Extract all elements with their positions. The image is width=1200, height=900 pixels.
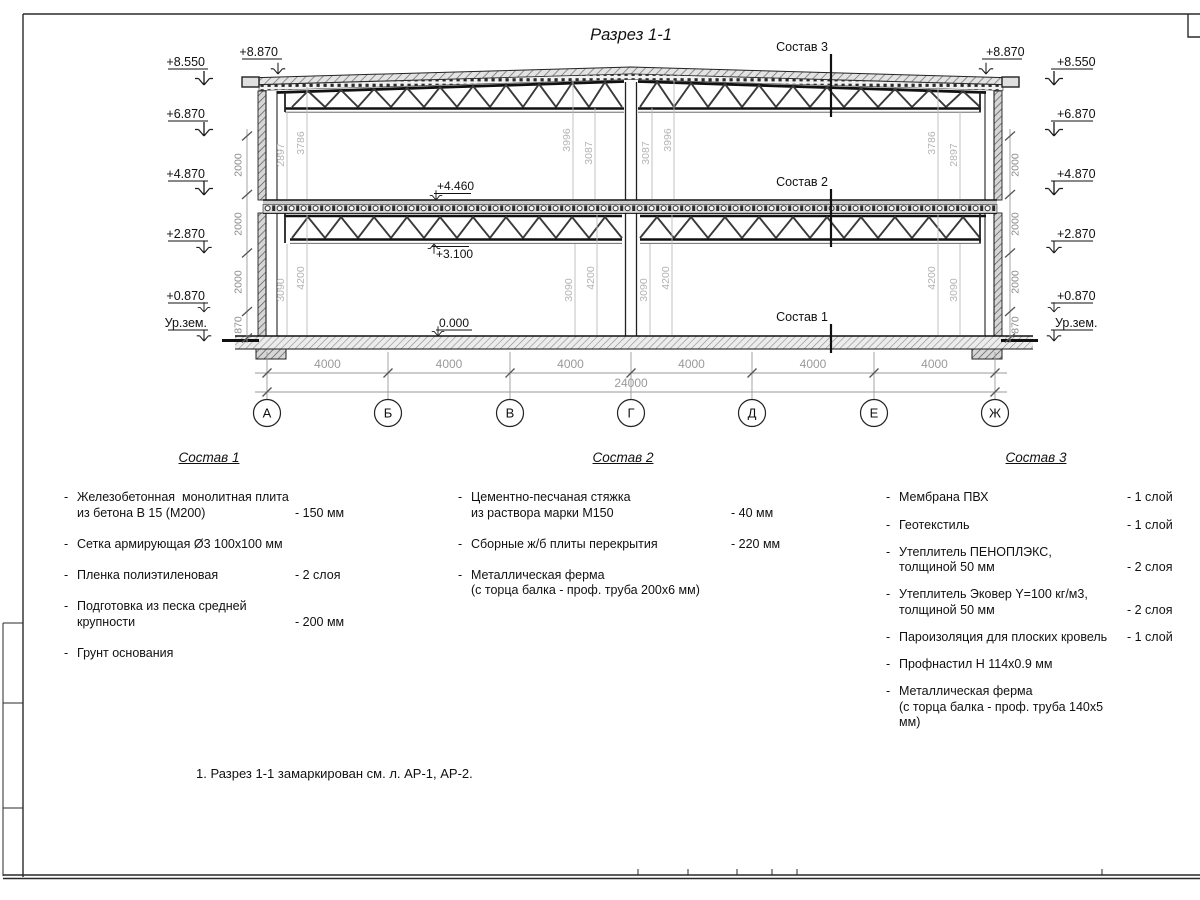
item-bullet: - — [64, 568, 77, 583]
dim-3786: 3786 — [295, 131, 307, 155]
elev-right-0870: +0.870 — [1057, 289, 1096, 303]
roof-edge-cap-right — [1002, 77, 1019, 87]
axis-label-a: А — [263, 406, 272, 421]
item-text: Металлическая ферма (с торца балка - про… — [899, 684, 1127, 730]
dim-3996: 3996 — [561, 128, 573, 152]
item-bullet: - — [64, 537, 77, 552]
list-item: - Профнастил Н 114х0.9 мм — [886, 657, 1186, 672]
chain-dim: 2000 — [233, 270, 245, 294]
dim-3090: 3090 — [275, 278, 287, 302]
elev-right-6870: +6.870 — [1057, 107, 1096, 121]
item-bullet: - — [886, 545, 899, 560]
dim-3090: 3090 — [563, 278, 575, 302]
item-text: Утеплитель Эковер Y=100 кг/м3, толщиной … — [899, 587, 1127, 618]
item-bullet: - — [886, 518, 899, 533]
item-text: Мембрана ПВХ — [899, 490, 1127, 505]
item-bullet: - — [886, 684, 899, 699]
list-item: - Сборные ж/б плиты перекрытия - 220 мм — [458, 537, 788, 552]
list-item: - Грунт основания — [64, 646, 354, 661]
elev-left-8870: +8.870 — [239, 45, 278, 59]
list-item: - Утеплитель ПЕНОПЛЭКС, толщиной 50 мм -… — [886, 545, 1186, 576]
item-text: Сетка армирующая Ø3 100х100 мм — [77, 537, 295, 552]
axis-label-v: В — [506, 406, 515, 421]
item-bullet: - — [886, 630, 899, 645]
item-value: - 220 мм — [731, 537, 785, 552]
dim-4000: 4000 — [800, 357, 827, 371]
axis-label-b: Б — [384, 406, 393, 421]
interior-dims-upper — [287, 80, 960, 199]
chain-dim: 2000 — [1010, 153, 1022, 177]
list-item: - Подготовка из песка средней крупности … — [64, 599, 354, 630]
interior-dims-lower — [287, 214, 960, 335]
elev-left-2870: +2.870 — [166, 227, 205, 241]
item-text: Пленка полиэтиленовая — [77, 568, 295, 583]
sheet-note: 1. Разрез 1-1 замаркирован см. л. АР-1, … — [196, 766, 473, 781]
dim-chain-left: 2000 2000 2000 870 — [233, 129, 253, 343]
elev-0000: 0.000 — [439, 316, 469, 330]
list-item: - Металлическая ферма (с торца балка - п… — [458, 568, 788, 599]
interior-dim-labels-lower: 3090 4200 3090 4200 3090 4200 4200 3090 — [275, 266, 960, 302]
dim-3087: 3087 — [640, 141, 652, 165]
item-bullet: - — [64, 490, 77, 505]
item-text: Сборные ж/б плиты перекрытия — [471, 537, 731, 552]
item-value: - 40 мм — [731, 506, 785, 521]
dim-24000: 24000 — [614, 376, 648, 390]
item-text: Цементно-песчаная стяжка из раствора мар… — [471, 490, 731, 521]
leader-label-sostav1: Состав 1 — [776, 310, 828, 324]
elev-left-6870: +6.870 — [166, 107, 205, 121]
axis-label-zh: Ж — [989, 406, 1001, 421]
bottom-dims: 4000 4000 4000 4000 4000 4000 24000 — [255, 352, 1007, 399]
elev-3100: +3.100 — [436, 247, 473, 261]
footing-left — [256, 349, 286, 359]
chain-dim: 2000 — [233, 153, 245, 177]
dim-3786: 3786 — [926, 131, 938, 155]
elev-left-8550: +8.550 — [166, 55, 205, 69]
item-bullet: - — [458, 568, 471, 583]
list-item: - Утеплитель Эковер Y=100 кг/м3, толщино… — [886, 587, 1186, 618]
drawing-title: Разрез 1-1 — [590, 26, 672, 44]
middle-floor-slab — [263, 200, 997, 213]
titleblock-ticks — [638, 869, 1102, 875]
composition-list-1: Состав 1 - Железобетонная монолитная пли… — [64, 450, 354, 677]
item-bullet: - — [886, 587, 899, 602]
chain-dim: 870 — [233, 316, 245, 334]
elev-right-4870: +4.870 — [1057, 167, 1096, 181]
leader-label-sostav2: Состав 2 — [776, 175, 828, 189]
item-bullet: - — [886, 657, 899, 672]
dim-4000: 4000 — [921, 357, 948, 371]
dim-4000: 4000 — [557, 357, 584, 371]
list-item: - Цементно-песчаная стяжка из раствора м… — [458, 490, 788, 521]
middle-truss-right — [640, 213, 986, 243]
dim-4200: 4200 — [585, 266, 597, 290]
dim-4000: 4000 — [436, 357, 463, 371]
drawing-sheet: Разрез 1-1 — [0, 0, 1200, 900]
item-value: - 1 слой — [1127, 518, 1185, 533]
item-text: Железобетонная монолитная плита из бетон… — [77, 490, 295, 521]
dim-4000: 4000 — [314, 357, 341, 371]
chain-dim: 2000 — [1010, 212, 1022, 236]
roof-edge-cap-left — [242, 77, 259, 87]
axis-label-e: Е — [870, 406, 879, 421]
composition-list-2: Состав 2 - Цементно-песчаная стяжка из р… — [458, 450, 788, 615]
elev-4460: +4.460 — [437, 179, 474, 193]
item-value: - 2 слоя — [1127, 603, 1185, 618]
list-item: - Сетка армирующая Ø3 100х100 мм — [64, 537, 354, 552]
dim-4200: 4200 — [660, 266, 672, 290]
list-item: - Металлическая ферма (с торца балка - п… — [886, 684, 1186, 730]
list-title: Состав 3 — [886, 450, 1186, 466]
axis-bubbles: А Б В Г Д Е Ж — [254, 400, 1009, 427]
elev-left-ground: Ур.зем. — [165, 316, 207, 330]
interior-dim-labels-upper: 2897 3786 3996 3087 3087 3996 3786 2897 — [275, 128, 960, 167]
item-text: Геотекстиль — [899, 518, 1127, 533]
elev-right-2870: +2.870 — [1057, 227, 1096, 241]
item-text: Металлическая ферма (с торца балка - про… — [471, 568, 731, 599]
section-drawing: Разрез 1-1 — [0, 0, 1200, 445]
item-bullet: - — [64, 646, 77, 661]
dim-3087: 3087 — [583, 141, 595, 165]
item-value: - 1 слой — [1127, 490, 1185, 505]
list-item: - Мембрана ПВХ - 1 слой — [886, 490, 1186, 505]
dim-4200: 4200 — [295, 266, 307, 290]
item-value: - 2 слоя — [1127, 560, 1185, 575]
chain-dim: 2000 — [1010, 270, 1022, 294]
dim-3090: 3090 — [638, 278, 650, 302]
item-text: Грунт основания — [77, 646, 295, 661]
elev-left-4870: +4.870 — [166, 167, 205, 181]
dim-4200: 4200 — [926, 266, 938, 290]
elev-left-0870: +0.870 — [166, 289, 205, 303]
leader-label-sostav3: Состав 3 — [776, 40, 828, 54]
chain-dim: 870 — [1010, 316, 1022, 334]
item-value: - 200 мм — [295, 615, 353, 630]
chain-dim: 2000 — [233, 212, 245, 236]
list-item: - Пленка полиэтиленовая - 2 слоя — [64, 568, 354, 583]
list-title: Состав 2 — [458, 450, 788, 466]
ground-slab — [222, 336, 1038, 359]
list-title: Состав 1 — [64, 450, 354, 466]
axis-label-d: Д — [748, 406, 757, 421]
dim-2897: 2897 — [948, 143, 960, 167]
dim-2897: 2897 — [275, 143, 287, 167]
elev-right-8870: +8.870 — [986, 45, 1025, 59]
dim-3996: 3996 — [662, 128, 674, 152]
dim-4000: 4000 — [678, 357, 705, 371]
item-text: Профнастил Н 114х0.9 мм — [899, 657, 1127, 672]
roof — [242, 67, 1019, 91]
frame-left-boxes — [3, 623, 23, 876]
elev-right-ground: Ур.зем. — [1055, 316, 1097, 330]
item-bullet: - — [64, 599, 77, 614]
footing-right — [972, 349, 1002, 359]
list-item: - Пароизоляция для плоских кровель - 1 с… — [886, 630, 1186, 645]
list-item: - Железобетонная монолитная плита из бет… — [64, 490, 354, 521]
item-bullet: - — [458, 537, 471, 552]
composition-list-3: Состав 3 - Мембрана ПВХ - 1 слой - Геоте… — [886, 450, 1186, 742]
middle-truss-left — [284, 213, 622, 243]
list-item: - Геотекстиль - 1 слой — [886, 518, 1186, 533]
item-value: - 150 мм — [295, 506, 353, 521]
dim-chain-right: 2000 2000 2000 870 — [1005, 129, 1022, 343]
item-value: - 2 слоя — [295, 568, 353, 583]
item-text: Пароизоляция для плоских кровель — [899, 630, 1127, 645]
dim-3090: 3090 — [948, 278, 960, 302]
item-text: Утеплитель ПЕНОПЛЭКС, толщиной 50 мм — [899, 545, 1127, 576]
item-bullet: - — [458, 490, 471, 505]
axis-label-g: Г — [627, 406, 634, 421]
item-bullet: - — [886, 490, 899, 505]
item-value: - 1 слой — [1127, 630, 1185, 645]
item-text: Подготовка из песка средней крупности — [77, 599, 295, 630]
elev-right-8550: +8.550 — [1057, 55, 1096, 69]
